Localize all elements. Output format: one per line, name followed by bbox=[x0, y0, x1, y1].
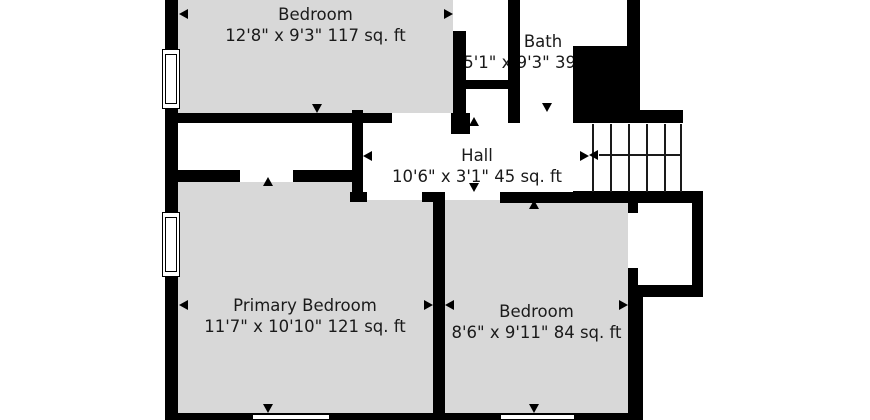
dim-arrow-up-icon bbox=[469, 117, 479, 126]
dim-arrow-up-icon bbox=[529, 200, 539, 209]
wall-bath-closet-divider bbox=[466, 80, 508, 89]
room-dimensions: 11'7" x 10'10" 121 sq. ft bbox=[178, 316, 432, 337]
window-bottom-left bbox=[252, 414, 330, 420]
wall-closet2-right bbox=[692, 191, 703, 297]
room-label-primary-bedroom: Primary Bedroom 11'7" x 10'10" 121 sq. f… bbox=[178, 295, 432, 337]
room-label-hall: Hall 10'6" x 3'1" 45 sq. ft bbox=[352, 145, 602, 187]
room-dimensions: 10'6" x 3'1" 45 sq. ft bbox=[352, 166, 602, 187]
window-left-lower bbox=[162, 212, 180, 277]
stair-tread bbox=[610, 124, 612, 192]
room-dimensions: 12'8" x 9'3" 117 sq. ft bbox=[178, 25, 453, 46]
wall-top-right-vertical bbox=[627, 0, 640, 46]
window-left-upper bbox=[162, 49, 180, 109]
room-name: Hall bbox=[352, 145, 602, 166]
wall-stair-block bbox=[573, 46, 640, 112]
stair-tread bbox=[646, 124, 648, 192]
window-bottom-right bbox=[500, 414, 575, 420]
wall-closet2-left-bottom bbox=[628, 268, 638, 286]
dim-arrow-down-icon bbox=[312, 104, 322, 113]
room-label-bedroom-right: Bedroom 8'6" x 9'11" 84 sq. ft bbox=[445, 301, 628, 343]
wall-stairs-bottom bbox=[573, 191, 703, 203]
room-name: Bedroom bbox=[178, 4, 453, 25]
wall-bath-left-foot bbox=[451, 113, 470, 134]
wall-closet2-left-top bbox=[628, 203, 638, 213]
wall-closet2-bottom bbox=[628, 285, 703, 297]
window-pane bbox=[165, 54, 177, 104]
wall-bath-right bbox=[508, 0, 520, 123]
wall-closet-bottom-left bbox=[165, 170, 240, 182]
wall-closet-bottom-right bbox=[293, 170, 353, 182]
dim-arrow-up-icon bbox=[263, 177, 273, 186]
floor-plan-canvas: Bath 5'1" x 9'3" 39 sq. ft bbox=[0, 0, 870, 420]
room-name: Bedroom bbox=[445, 301, 628, 322]
room-name: Primary Bedroom bbox=[178, 295, 432, 316]
room-label-bedroom-top: Bedroom 12'8" x 9'3" 117 sq. ft bbox=[178, 4, 453, 46]
wall-bedroom-divider bbox=[433, 192, 445, 413]
stair-tread bbox=[628, 124, 630, 192]
dim-arrow-down-icon bbox=[263, 404, 273, 413]
stair-direction-line bbox=[599, 154, 681, 156]
window-pane bbox=[165, 217, 177, 272]
stair-tread bbox=[664, 124, 666, 192]
wall-bedroom-right-exterior bbox=[628, 297, 643, 420]
stair-tread bbox=[680, 124, 682, 192]
dim-arrow-down-icon bbox=[542, 103, 552, 112]
wall-hall-bottom-left bbox=[350, 192, 367, 202]
wall-bath-left bbox=[453, 31, 466, 123]
room-dimensions: 8'6" x 9'11" 84 sq. ft bbox=[445, 322, 628, 343]
dim-arrow-down-icon bbox=[529, 404, 539, 413]
